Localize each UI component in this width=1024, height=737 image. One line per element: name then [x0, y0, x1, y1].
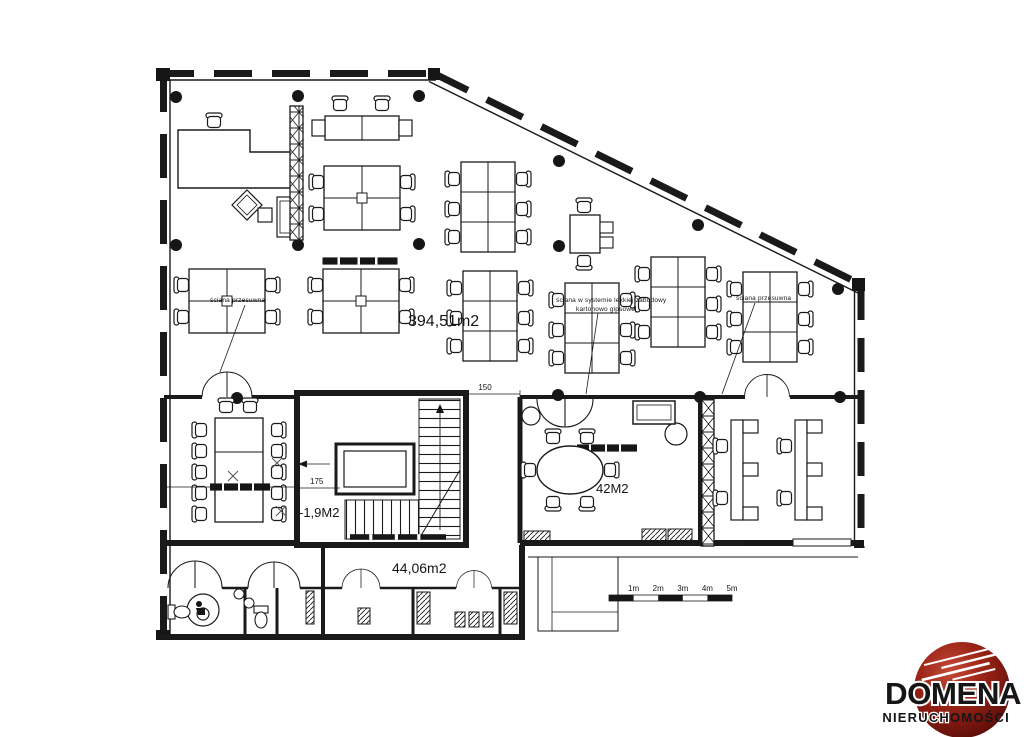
sink — [244, 598, 254, 608]
plant — [665, 423, 687, 445]
logo-sub-right: OMOŚCI — [950, 710, 1010, 725]
dim-175: 175 — [310, 477, 324, 486]
small-desk — [570, 198, 613, 270]
double-door-meeting-room — [202, 372, 252, 397]
dim-150-group: 150 — [466, 383, 520, 398]
radiator — [642, 529, 666, 542]
floor-plan-drawing: 394,51m2 42M2 -1,9M2 44,06m2 175 150 ści… — [0, 0, 1024, 737]
urinal — [483, 612, 493, 627]
sanitary-annex — [168, 589, 517, 628]
long-meeting-table — [312, 96, 412, 140]
scale-tick-5m: 5m — [726, 584, 737, 593]
area-label-open-office: 394,51m2 — [408, 313, 479, 330]
logo-sub-left: NIERUCH — [882, 710, 950, 725]
scale-tick-2m: 2m — [653, 584, 664, 593]
open-office-furniture — [174, 96, 813, 394]
conference-table — [215, 418, 263, 522]
accessible-wc — [168, 594, 219, 626]
meeting-room — [167, 398, 297, 522]
logo-name: DOMENA — [885, 676, 1021, 711]
external-stair-structure — [538, 557, 618, 631]
scale-tick-3m: 3m — [677, 584, 688, 593]
area-label-stairwell: -1,9M2 — [299, 505, 339, 520]
desk-cluster-6 — [727, 272, 813, 362]
note-sliding-wall-left: ściana przesuwna — [210, 297, 265, 304]
area-label-room-42: 42M2 — [596, 481, 629, 496]
truss-partition — [701, 399, 714, 546]
sink — [234, 589, 244, 599]
urinal — [455, 612, 465, 627]
sideboard — [633, 401, 675, 424]
desk-cluster-4 — [308, 269, 414, 333]
workstation-desk — [713, 420, 758, 520]
radiator — [504, 592, 517, 624]
door-annex-2 — [248, 562, 300, 588]
radiator — [668, 529, 692, 542]
scale-tick-4m: 4m — [702, 584, 713, 593]
radiator — [417, 592, 430, 624]
toilet — [254, 606, 268, 628]
corner-block — [852, 278, 865, 291]
door-annex-1 — [168, 561, 222, 588]
workstation-desk — [777, 420, 822, 520]
door-annex-3 — [342, 569, 380, 588]
company-logo: DOMENA NIERUCH OMOŚCI — [882, 642, 1021, 737]
right-office — [701, 399, 822, 546]
radiator — [524, 531, 550, 543]
oval-table — [537, 446, 603, 494]
note-partition-line1: ściana w systemie lekkiej zabudowy — [556, 297, 667, 304]
double-door-right-office — [745, 375, 790, 398]
plant — [522, 407, 540, 425]
radiator — [306, 591, 314, 624]
side-table — [258, 208, 272, 222]
truss-partition — [290, 106, 303, 240]
urinal — [358, 608, 370, 624]
scale-tick-1m: 1m — [628, 584, 639, 593]
desk-cluster-4 — [309, 166, 415, 230]
scale-bar: 1m 2m 3m 4m 5m — [609, 584, 738, 601]
floor-plan-page: 394,51m2 42M2 -1,9M2 44,06m2 175 150 ści… — [0, 0, 1024, 737]
area-label-annex: 44,06m2 — [392, 560, 447, 576]
desk-cluster-6 — [445, 162, 531, 252]
urinal — [469, 612, 479, 627]
corner-block — [428, 68, 440, 80]
note-sliding-wall-right: ściana przesuwna — [736, 295, 791, 302]
double-door-room-42 — [537, 399, 593, 427]
corner-block — [156, 68, 170, 81]
stair-core — [295, 393, 466, 545]
door-annex-4 — [457, 571, 492, 589]
room-42 — [521, 401, 692, 543]
note-partition-line2: kartonowo gipsowej — [576, 306, 637, 313]
dim-150: 150 — [478, 383, 492, 392]
reception-desk — [178, 113, 296, 188]
